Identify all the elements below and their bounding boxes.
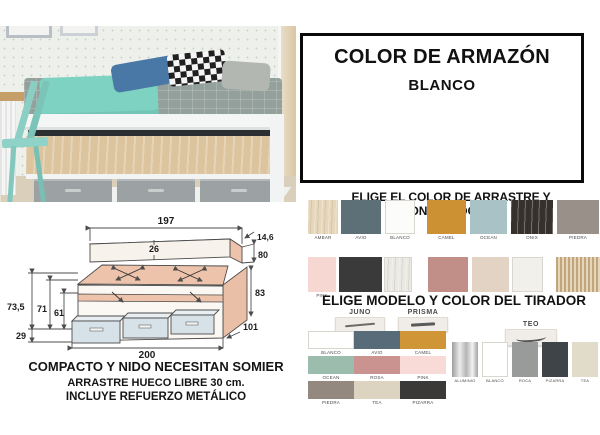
color-swatch-ocean[interactable]: OCEAN [470, 200, 507, 240]
photo-bed-rail [20, 114, 284, 130]
color-swatch[interactable] [428, 257, 468, 293]
color-swatch-pink[interactable]: PINK [308, 257, 336, 298]
arrastre-swatch-row-2: PINK [308, 257, 600, 298]
swatch-chip[interactable] [400, 356, 446, 374]
color-swatch[interactable] [472, 257, 509, 293]
swatch-chip[interactable] [572, 342, 598, 377]
swatch-chip[interactable] [354, 356, 400, 374]
diagram-notes: COMPACTO Y NIDO NECESITAN SOMIER ARRASTR… [0, 359, 312, 403]
handle-color-rosa[interactable]: ROSA [354, 356, 400, 381]
swatch-chip[interactable] [482, 342, 508, 377]
handle-color-blanco[interactable]: BLANCO [308, 331, 354, 356]
teo-color-row: ALUMINIO BLANCO ROCA PIZARRA TEA [452, 342, 598, 383]
color-swatch-avio[interactable]: AVIO [341, 200, 381, 240]
swatch-chip[interactable] [472, 257, 509, 292]
swatch-label: AVIO [341, 235, 381, 240]
dim-26: 26 [149, 244, 159, 254]
color-swatch[interactable] [339, 257, 382, 293]
swatch-chip[interactable] [354, 381, 400, 399]
dim-197: 197 [158, 216, 175, 227]
photo-drawer [200, 179, 278, 202]
wall-frame [6, 26, 52, 38]
swatch-chip[interactable] [400, 381, 446, 399]
model-label-juno: JUNO [335, 309, 385, 316]
swatch-chip[interactable] [452, 342, 478, 377]
swatch-chip[interactable] [339, 257, 382, 292]
color-swatch-piedra[interactable]: PIEDRA [557, 200, 599, 240]
model-label-prisma: PRISMA [398, 309, 448, 316]
swatch-label: PIEDRA [308, 400, 354, 406]
frame-color-value: BLANCO [303, 77, 581, 94]
dimensions-diagram: 197 26 14,6 80 73,5 71 61 29 83 101 200 [4, 210, 309, 360]
juno-handle-icon [345, 323, 375, 328]
teo-color-roca[interactable]: ROCA [512, 342, 538, 383]
wall-frame [60, 26, 98, 36]
dim-71: 71 [37, 304, 47, 314]
swatch-chip[interactable] [427, 200, 466, 234]
color-swatch[interactable] [556, 257, 600, 293]
swatch-chip[interactable] [341, 200, 381, 234]
note-refuerzo: INCLUYE REFUERZO METÁLICO [0, 391, 312, 403]
swatch-chip[interactable] [512, 342, 538, 377]
swatch-chip[interactable] [385, 200, 415, 234]
dim-83: 83 [255, 288, 265, 298]
arrastre-swatch-row-1: AMBAR AVIO BLANCO CAMEL OCEAN ONIX PIEDR… [308, 200, 599, 240]
photo-bed-end [270, 114, 284, 202]
swatch-chip[interactable] [354, 331, 400, 349]
juno-prisma-color-grid: BLANCO AVIO CAMEL OCEAN ROSA PINK PIEDRA [308, 331, 446, 406]
swatch-label: AMBAR [308, 235, 338, 240]
prisma-handle-button[interactable] [398, 317, 448, 332]
swatch-label: BLANCO [385, 235, 415, 240]
swatch-label: ROCA [512, 378, 538, 383]
handle-color-pizarra[interactable]: PIZARRA [400, 381, 446, 406]
swatch-label: CAMEL [427, 235, 466, 240]
swatch-chip[interactable] [308, 257, 336, 292]
swatch-chip[interactable] [512, 257, 543, 292]
teo-color-pizarra[interactable]: PIZARRA [542, 342, 568, 383]
dim-61: 61 [54, 308, 64, 318]
color-swatch-ambar[interactable]: AMBAR [308, 200, 338, 240]
dim-14-6: 14,6 [257, 232, 274, 242]
dim-101: 101 [243, 322, 258, 332]
swatch-label: ALUMINIO [452, 378, 478, 383]
dim-29: 29 [16, 331, 26, 341]
color-swatch-blanco[interactable]: BLANCO [385, 200, 415, 240]
dim-73-5: 73,5 [7, 302, 25, 312]
swatch-chip[interactable] [511, 200, 553, 234]
swatch-chip[interactable] [308, 356, 354, 374]
product-configurator: COLOR DE ARMAZÓN BLANCO ELIGE EL COLOR D… [0, 0, 600, 435]
swatch-label: ONIX [511, 235, 553, 240]
frame-color-title: COLOR DE ARMAZÓN [303, 46, 581, 69]
swatch-label: TEA [572, 378, 598, 383]
swatch-label: PIZARRA [542, 378, 568, 383]
photo-pillow-checkered [166, 49, 227, 87]
model-label-teo: TEO [505, 321, 557, 328]
photo-drawers [34, 179, 278, 202]
color-swatch[interactable] [512, 257, 543, 293]
teo-color-blanco[interactable]: BLANCO [482, 342, 508, 383]
teo-color-aluminio[interactable]: ALUMINIO [452, 342, 478, 383]
swatch-label: PIEDRA [557, 235, 599, 240]
handle-color-camel[interactable]: CAMEL [400, 331, 446, 356]
frame-color-box: COLOR DE ARMAZÓN BLANCO [300, 33, 584, 183]
swatch-chip[interactable] [428, 257, 468, 292]
swatch-label: PIZARRA [400, 400, 446, 406]
color-swatch-camel[interactable]: CAMEL [427, 200, 466, 240]
handle-color-avio[interactable]: AVIO [354, 331, 400, 356]
swatch-chip[interactable] [308, 381, 354, 399]
swatch-chip[interactable] [556, 257, 600, 292]
swatch-chip[interactable] [470, 200, 507, 234]
handle-color-tea[interactable]: TEA [354, 381, 400, 406]
handle-color-pink[interactable]: PINK [400, 356, 446, 381]
dim-80: 80 [258, 250, 268, 260]
swatch-label: TEA [354, 400, 400, 406]
swatch-chip[interactable] [542, 342, 568, 377]
photo-drawer [117, 179, 195, 202]
tirador-heading: ELIGE MODELO Y COLOR DEL TIRADOR [316, 293, 592, 308]
juno-handle-button[interactable] [335, 317, 385, 332]
color-swatch-onix[interactable]: ONIX [511, 200, 553, 240]
color-swatch[interactable] [384, 257, 412, 293]
swatch-chip[interactable] [308, 200, 338, 234]
photo-pillow-grey [221, 60, 271, 91]
swatch-chip[interactable] [308, 331, 354, 349]
prisma-handle-icon [411, 322, 435, 326]
photo-bed-wood-band [26, 136, 278, 176]
note-hueco: ARRASTRE HUECO LIBRE 30 cm. [0, 377, 312, 389]
handle-color-piedra[interactable]: PIEDRA [308, 381, 354, 406]
teo-color-tea[interactable]: TEA [572, 342, 598, 383]
swatch-chip[interactable] [384, 257, 412, 292]
swatch-label: BLANCO [482, 378, 508, 383]
swatch-label: OCEAN [470, 235, 507, 240]
note-somier: COMPACTO Y NIDO NECESITAN SOMIER [0, 359, 312, 374]
swatch-chip[interactable] [400, 331, 446, 349]
swatch-chip[interactable] [557, 200, 599, 234]
handle-color-ocean[interactable]: OCEAN [308, 356, 354, 381]
product-photo [0, 26, 296, 202]
